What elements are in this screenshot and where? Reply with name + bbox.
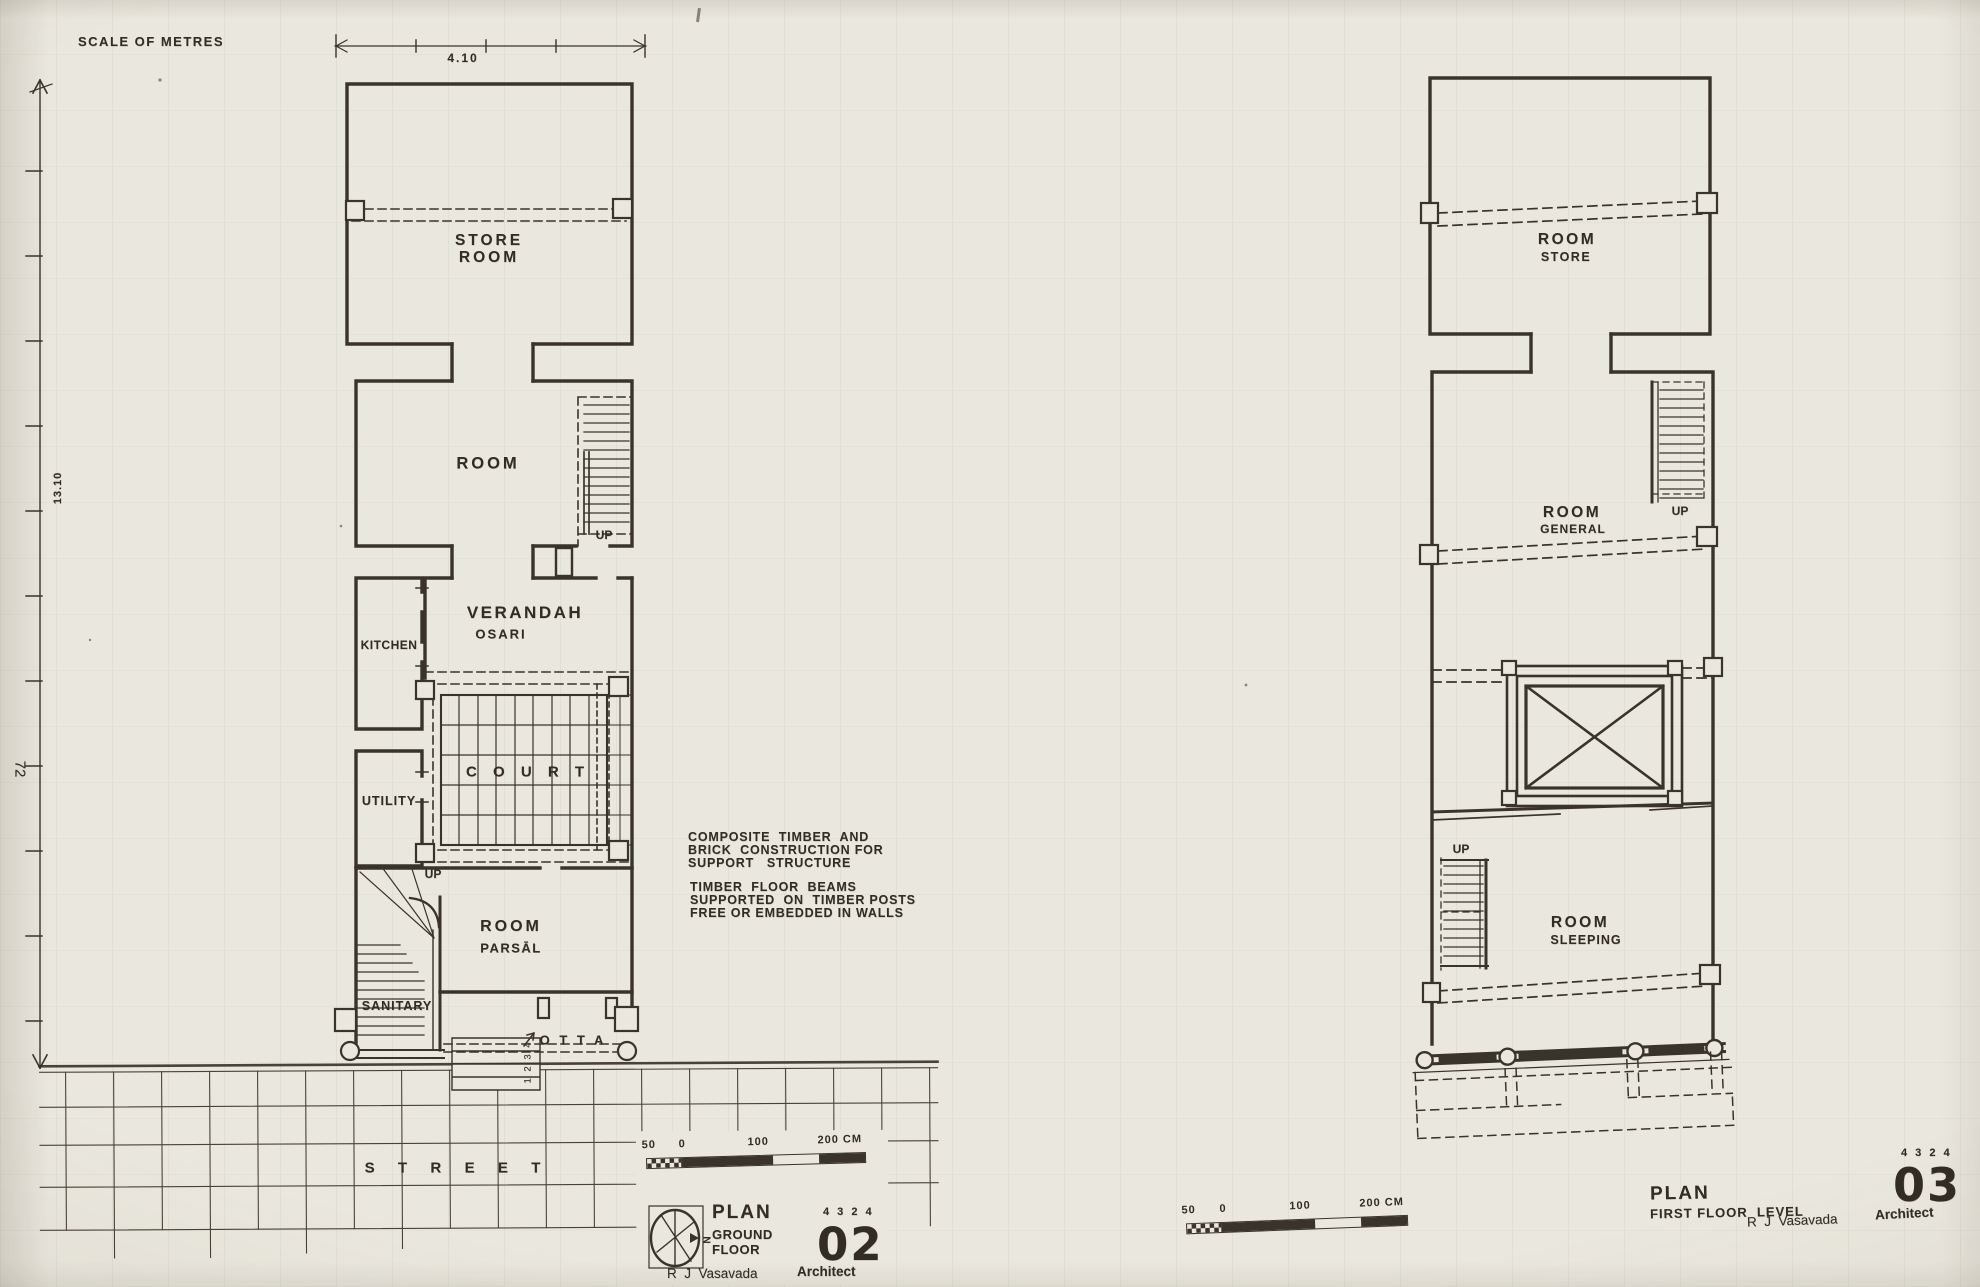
sbar2-100: 100 [1289, 1200, 1311, 1213]
note-line-2: BRICK CONSTRUCTION FOR [688, 843, 883, 857]
ff-up-label-bottom: UP [1453, 842, 1470, 856]
left-dimension: 13.10 [52, 472, 64, 505]
ff-architect-name: R J Vasavada [1747, 1211, 1838, 1229]
ff-stair-up-bottom [1441, 858, 1488, 970]
ff-store-label-1: ROOM [1538, 231, 1596, 249]
gf-sanitary-label: SANITARY [362, 999, 433, 1013]
top-dimension: 4.10 [447, 51, 478, 65]
gf-store-room-label-2: ROOM [459, 249, 519, 267]
ff-timber-posts [1420, 193, 1722, 1002]
gf-north-letter: N [701, 1236, 712, 1243]
gf-court-label: C O U R T [466, 764, 590, 781]
note-line-1: COMPOSITE TIMBER AND [688, 830, 869, 844]
sbar2-200: 200 CM [1359, 1196, 1404, 1210]
note-line-6: FREE OR EMBEDDED IN WALLS [690, 906, 904, 920]
gf-kitchen-label: KITCHEN [361, 638, 418, 652]
gf-osari-label: OSARI [475, 627, 526, 642]
ff-general-label-2: GENERAL [1540, 522, 1606, 536]
gf-parsal-label-1: ROOM [480, 918, 542, 936]
note-line-4: TIMBER FLOOR BEAMS [690, 880, 857, 894]
gf-otta-step-numbers: 1 2 3 4 [523, 1040, 534, 1083]
gf-utility-label: UTILITY [362, 794, 416, 808]
sbar1-50: 50 [641, 1139, 656, 1151]
gf-job-number: 4 3 2 4 [823, 1206, 874, 1218]
note-line-3: SUPPORT STRUCTURE [688, 856, 851, 870]
ff-title-plan: PLAN [1650, 1182, 1710, 1205]
sbar1-bar [646, 1152, 866, 1169]
ff-sleeping-label-2: SLEEPING [1550, 933, 1621, 947]
gf-architect-role: Architect [797, 1264, 856, 1279]
scan-specks [89, 8, 1248, 686]
scale-heading: SCALE OF METRES [78, 34, 224, 49]
sbar2-50: 50 [1181, 1204, 1196, 1217]
ff-stair-up-top [1652, 382, 1706, 502]
gf-otta-label: O T T A [540, 1033, 607, 1048]
sbar2-bar [1186, 1215, 1408, 1235]
ff-up-label-top: UP [1672, 504, 1689, 518]
metre-scale-and-dimensions [26, 35, 646, 1068]
gf-verandah-label: VERANDAH [467, 603, 583, 623]
ff-court-opening [1502, 661, 1682, 806]
ff-store-label-2: STORE [1541, 250, 1591, 264]
page-number: 72 [12, 761, 29, 778]
ff-architect-role: Architect [1875, 1204, 1934, 1222]
note-line-5: SUPPORTED ON TIMBER POSTS [690, 893, 916, 907]
gf-title-floor-1: GROUND [712, 1227, 773, 1242]
sbar2-0: 0 [1219, 1203, 1227, 1215]
scanned-floor-plan-page: SCALE OF METRES 4.10 13.10 72 STORE ROOM… [0, 0, 1980, 1287]
plan-linework [0, 0, 1980, 1287]
gf-up-label-parsal: UP [425, 867, 442, 881]
scale-bar-cm-ground: 50 0 100 200 CM [639, 1133, 876, 1182]
gf-room-label: ROOM [456, 455, 519, 474]
ff-balcony-front [1412, 1039, 1733, 1138]
street-label: S T R E E T [365, 1160, 546, 1177]
sbar1-0: 0 [678, 1138, 685, 1150]
gf-up-label-stair: UP [596, 528, 613, 542]
ff-sleeping-label-1: ROOM [1551, 914, 1609, 932]
gf-parsal-label-2: PARSĀL [480, 941, 541, 956]
gf-title-floor-2: FLOOR [712, 1242, 760, 1257]
gf-architect-name: R J Vasavada [667, 1266, 758, 1281]
gf-stair-up [584, 405, 629, 534]
sbar1-200: 200 CM [817, 1133, 862, 1146]
sbar1-100: 100 [747, 1136, 769, 1149]
gf-title-plan: PLAN [712, 1202, 772, 1224]
ff-general-label-1: ROOM [1543, 504, 1601, 522]
gf-store-room-label-1: STORE [455, 232, 523, 250]
